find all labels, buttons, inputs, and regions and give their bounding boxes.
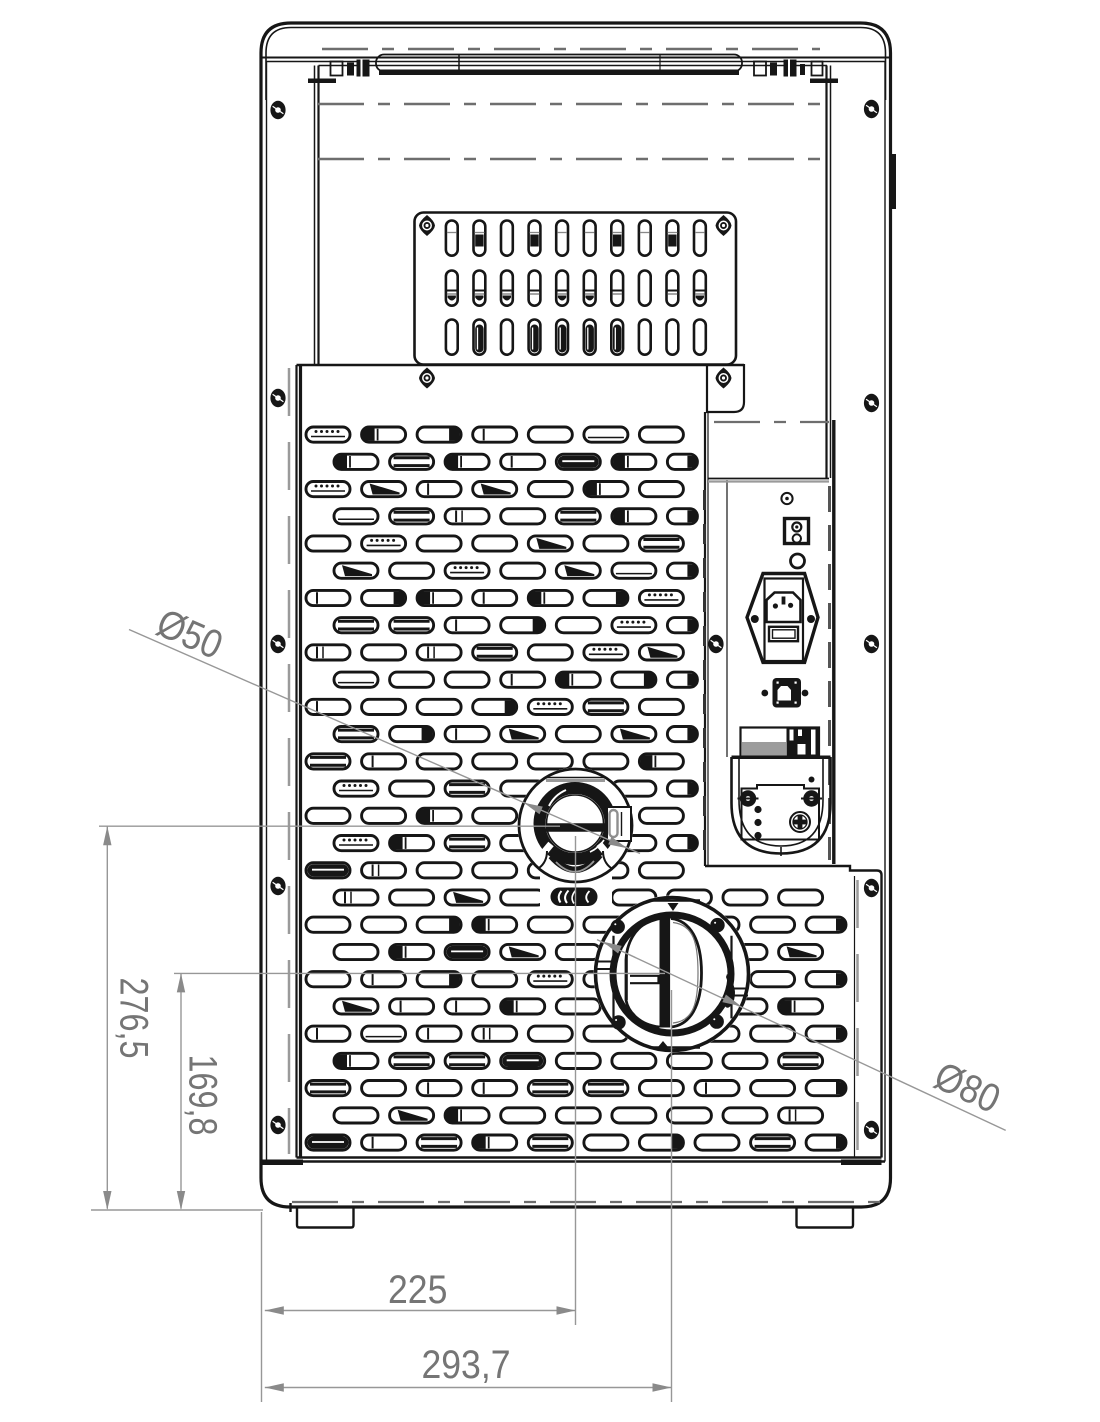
svg-text:293,7: 293,7 xyxy=(421,1343,510,1387)
svg-text:225: 225 xyxy=(388,1268,447,1312)
svg-text:276,5: 276,5 xyxy=(112,977,157,1058)
svg-text:169,8: 169,8 xyxy=(181,1054,226,1135)
